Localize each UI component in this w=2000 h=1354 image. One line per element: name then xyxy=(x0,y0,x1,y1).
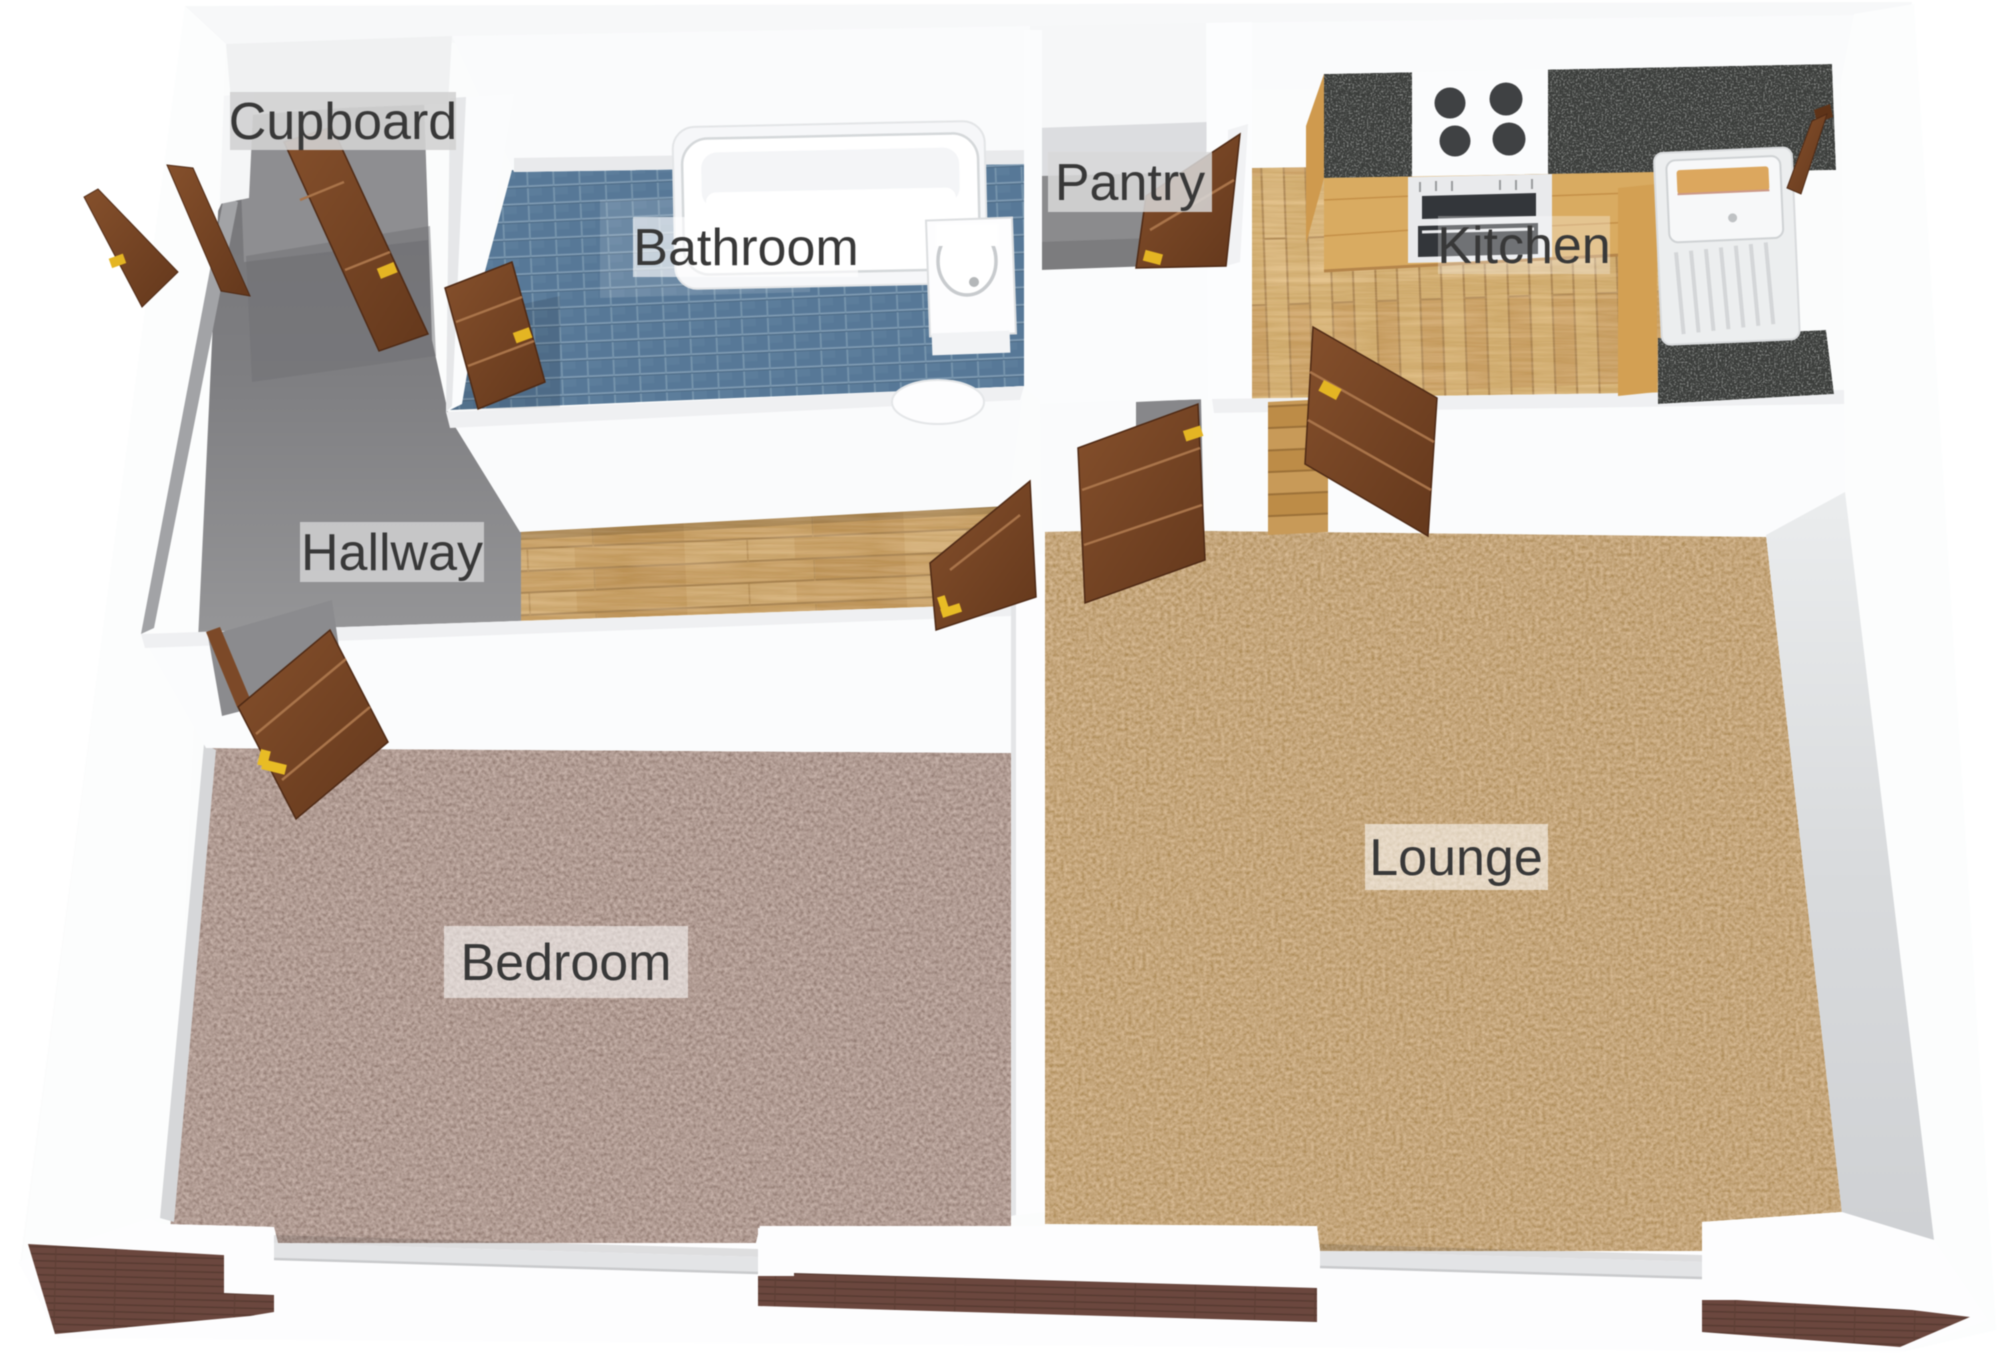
svg-text:Hallway: Hallway xyxy=(301,524,483,582)
svg-text:Bathroom: Bathroom xyxy=(633,219,858,277)
svg-text:Pantry: Pantry xyxy=(1055,154,1205,212)
svg-text:Lounge: Lounge xyxy=(1369,829,1543,887)
svg-text:Bedroom: Bedroom xyxy=(461,934,672,992)
svg-text:Cupboard: Cupboard xyxy=(229,93,457,151)
svg-text:Kitchen: Kitchen xyxy=(1437,217,1610,275)
